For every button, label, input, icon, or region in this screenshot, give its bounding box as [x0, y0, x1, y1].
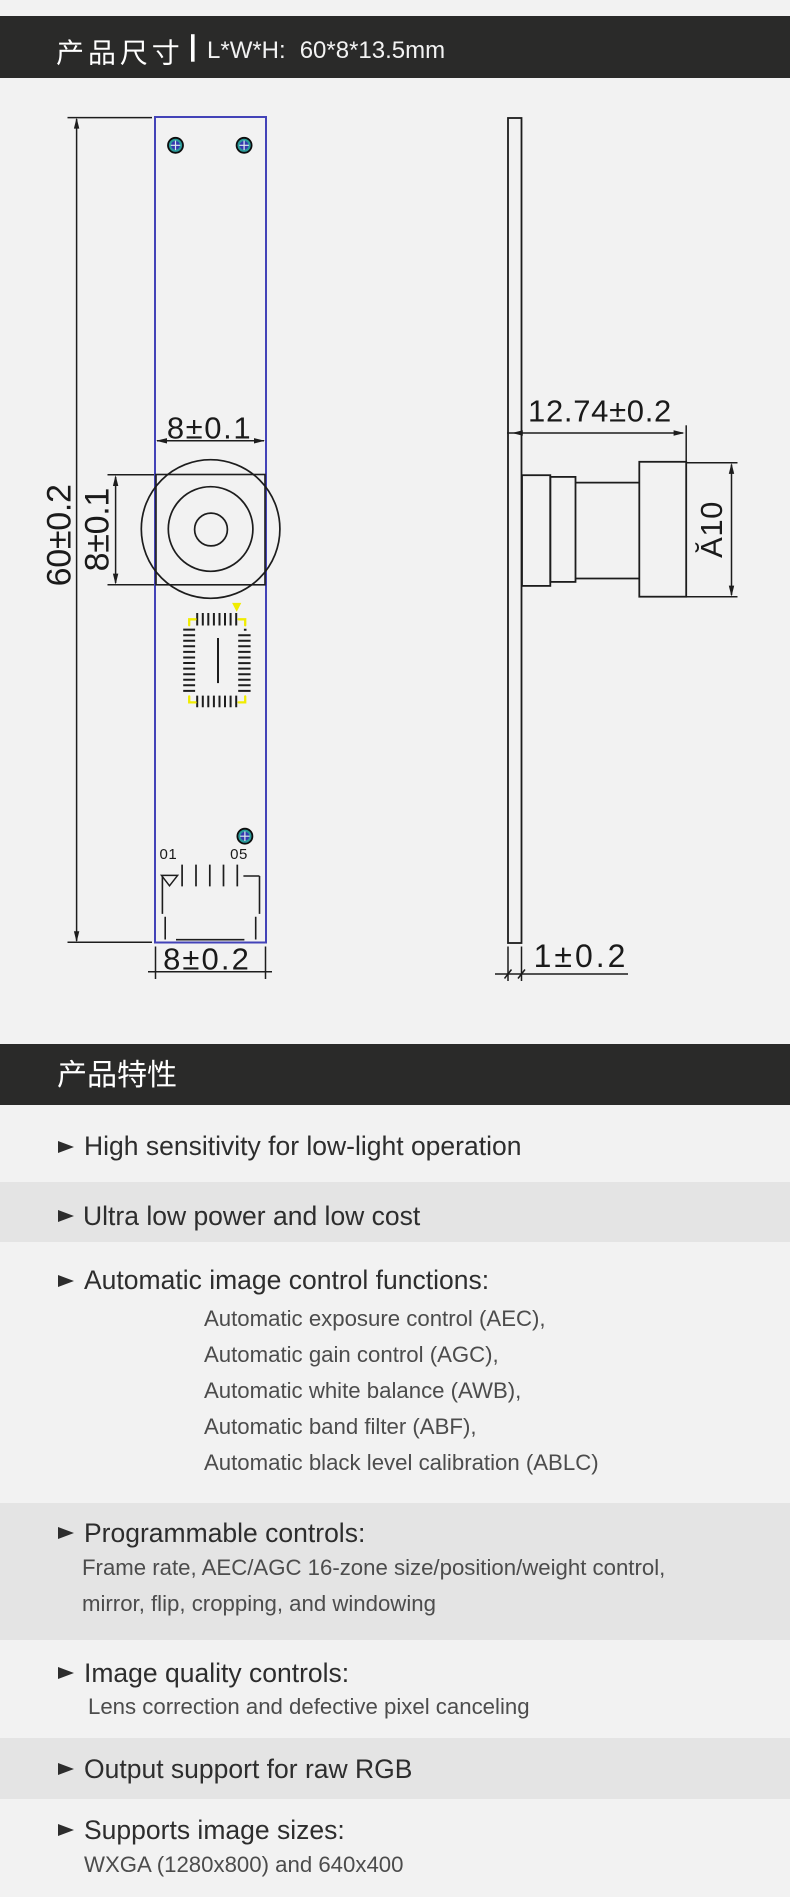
svg-text:Ă10: Ă10 [694, 501, 729, 558]
svg-text:05: 05 [230, 846, 248, 863]
svg-text:1±0.2: 1±0.2 [534, 938, 629, 974]
svg-text:01: 01 [160, 846, 178, 863]
svg-text:60±0.2: 60±0.2 [41, 484, 79, 586]
svg-text:8±0.1: 8±0.1 [79, 488, 117, 571]
svg-text:12.74±0.2: 12.74±0.2 [528, 394, 672, 429]
